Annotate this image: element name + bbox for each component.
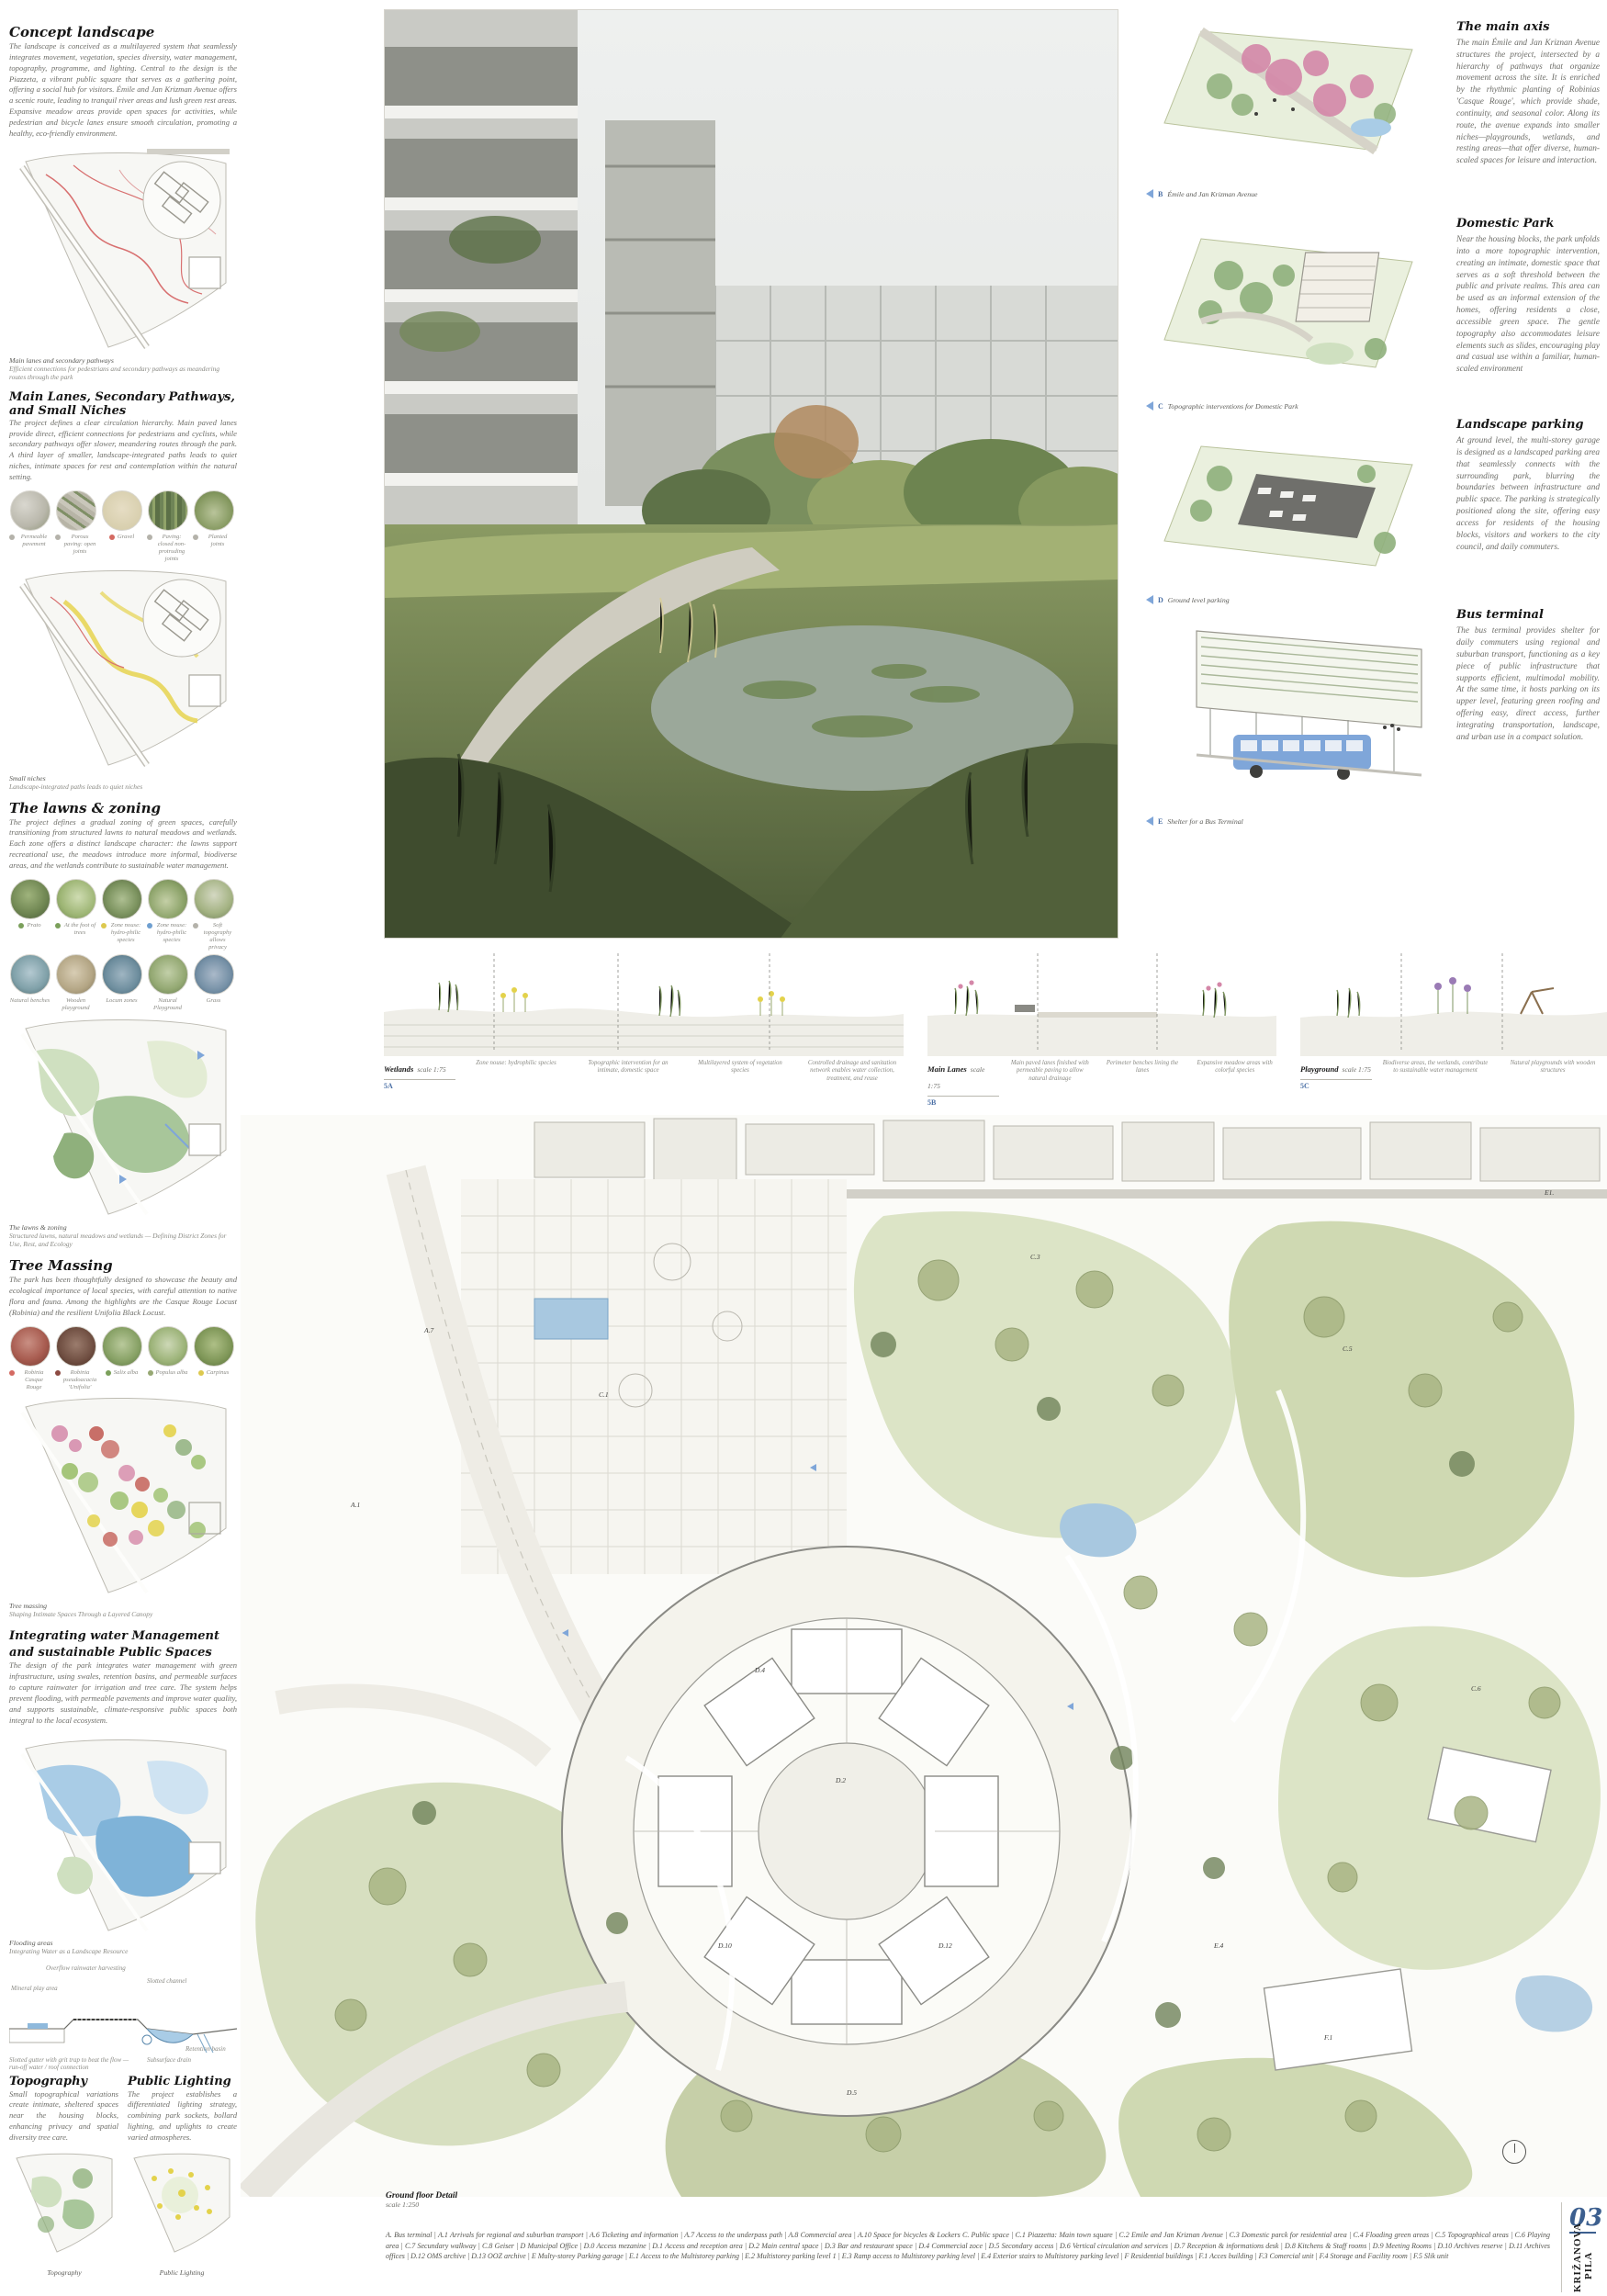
figure-caption: Flooding areas Integrating Water as a La… — [9, 1939, 237, 1955]
material-photo — [102, 490, 142, 531]
section-scale: scale 1:75 — [1343, 1065, 1371, 1074]
caption-title: Flooding areas — [9, 1939, 237, 1947]
water-section-sketch: Overflow rainwater harvesting Mineral pl… — [9, 1964, 237, 2073]
zone-swatch: Grass — [193, 954, 234, 1012]
zone-swatch: Zone nouse: hydro-philic species — [147, 879, 188, 951]
mini-plan-caption: Public Lighting — [127, 2268, 237, 2277]
plan-label: C.3 — [1030, 1253, 1040, 1261]
zone-label: Zone nouse: hydro-philic species — [155, 922, 188, 944]
axon-main-axis-drawing — [1146, 13, 1438, 187]
axon-landscape-parking-drawing — [1146, 423, 1438, 593]
text-block-main-axis: The main axis The main Émile and Jan Kri… — [1456, 20, 1600, 167]
axon-caption-text: Shelter for a Bus Terminal — [1167, 817, 1242, 826]
axon-caption: B Émile and Jan Krizman Avenue — [1146, 189, 1438, 198]
zone-label: Natural Playground — [147, 997, 188, 1012]
block-title: Domestic Park — [1456, 217, 1600, 231]
material-label: Planted joints — [201, 534, 234, 548]
section-main-lanes: Main Lanes scale 1:75 5B Main paved lane… — [927, 948, 1276, 1111]
plan-caption-scale: scale 1:250 — [386, 2200, 457, 2209]
zone-label: Soft topography allows privacy — [201, 922, 234, 951]
tree-species-swatches: Robinia Casque Rouge Robinia pseudoacaci… — [9, 1326, 237, 1391]
legend-dot — [193, 923, 198, 929]
tree-swatch: Robinia pseudoacacia 'Unifolia' — [55, 1326, 96, 1391]
plan-legend: A. Bus terminal | A.1 Arrivals for regio… — [386, 2230, 1550, 2262]
sections-band: Wetlands scale 1:75 5A Zone nouse: hydro… — [384, 948, 1607, 1111]
axon-landscape-parking: D Ground level parking — [1146, 423, 1438, 604]
axon-caption: E Shelter for a Bus Terminal — [1146, 816, 1438, 826]
zone-swatch: Wooden playground — [55, 954, 96, 1012]
section-caption-labels: Zone nouse: hydrophilic species Topograp… — [465, 1060, 904, 1090]
material-swatch: Paving: closed non-protruding joints — [147, 490, 188, 563]
section-body: The project defines a clear circulation … — [9, 418, 237, 483]
section-water: Integrating water Management and sustain… — [9, 1627, 237, 1726]
block-title: Landscape parking — [1456, 418, 1600, 432]
section-caption-labels: Biodiverse areas, the wetlands, contribu… — [1381, 1060, 1607, 1090]
plan-label: E1. — [1545, 1188, 1554, 1197]
diagram-tree-massing — [9, 1392, 237, 1599]
section-tree-massing: Tree Massing The park has been thoughtfu… — [9, 1257, 237, 1318]
section-label: Zone nouse: hydrophilic species — [465, 1060, 568, 1090]
section-lawns: The lawns & zoning The project defines a… — [9, 800, 237, 872]
legend-dot — [147, 535, 152, 540]
block-title: The main axis — [1456, 20, 1600, 34]
zone-swatch: Zone nouse: hydro-philic species — [101, 879, 142, 951]
section-body: Small topographical variations create in… — [9, 2089, 118, 2144]
section-body: The project establishes a differentiated… — [128, 2089, 237, 2144]
mini-plans: Topography Public Lighting — [9, 2151, 237, 2277]
section-label: Expansive meadow areas with colorful spe… — [1193, 1060, 1276, 1107]
section-label: Biodiverse areas, the wetlands, contribu… — [1381, 1060, 1489, 1090]
diagram-main-lanes — [9, 147, 237, 354]
plan-label: D.4 — [755, 1666, 765, 1674]
caption-sub: Structured lawns, natural meadows and we… — [9, 1232, 237, 1248]
mini-plan-lighting-drawing — [127, 2151, 235, 2268]
legend-dot — [106, 1370, 111, 1376]
zone-photo — [102, 879, 142, 919]
section-wetlands: Wetlands scale 1:75 5A Zone nouse: hydro… — [384, 948, 904, 1111]
sketch-label: Slotted channel — [147, 1977, 186, 1985]
section-caption-head: Main Lanes scale 1:75 5B — [927, 1060, 999, 1107]
axon-caption: D Ground level parking — [1146, 595, 1438, 604]
section-wetlands-drawing — [384, 948, 904, 1056]
plan-view-marker-icon — [1067, 1703, 1073, 1710]
zone-photo — [148, 954, 188, 995]
diagram-lawns-zoning — [9, 1014, 237, 1221]
caption-sub: Landscape-integrated paths leads to quie… — [9, 782, 237, 791]
text-block-domestic-park: Domestic Park Near the housing blocks, t… — [1456, 217, 1600, 376]
zone-swatch: Prato — [9, 879, 51, 951]
project-name: KRIŽANOVA PILA — [1572, 2239, 1594, 2292]
zone-photo — [194, 954, 234, 995]
plan-label: A.1 — [351, 1501, 360, 1509]
plan-label: A.7 — [424, 1326, 433, 1334]
section-title: Topography — [9, 2075, 87, 2088]
section-title: Tree Massing — [9, 1257, 113, 1274]
material-swatch: Porous paving: open joints — [55, 490, 96, 563]
legend-dot — [55, 535, 61, 540]
diagram-flooding-areas — [9, 1734, 237, 1936]
right-text-column: The main axis The main Émile and Jan Kri… — [1456, 20, 1600, 771]
zone-swatch: Natural Playground — [147, 954, 188, 1012]
material-photo — [10, 490, 51, 531]
zone-photo — [148, 879, 188, 919]
plan-label: C.1 — [599, 1390, 609, 1399]
ground-floor-plan-drawing — [241, 1115, 1607, 2197]
zone-photo — [10, 954, 51, 995]
tree-photo — [148, 1326, 188, 1367]
section-caption: Playground scale 1:75 5C Biodiverse area… — [1300, 1060, 1607, 1090]
zone-label: At the foot of trees — [63, 922, 96, 937]
plan-caption: Ground floor Detail scale 1:250 — [386, 2191, 457, 2209]
tree-label: Carpinus — [207, 1369, 230, 1377]
axon-bus-terminal: E Shelter for a Bus Terminal — [1146, 617, 1438, 826]
figure-caption: Main lanes and secondary pathways Effici… — [9, 356, 237, 381]
mini-plan-topography-drawing — [9, 2151, 118, 2268]
section-label: Natural playgrounds with wooden structur… — [1499, 1060, 1607, 1090]
caption-title: Small niches — [9, 774, 237, 782]
plan-label: E.4 — [1214, 1941, 1223, 1950]
tree-swatch: Carpinus — [193, 1326, 234, 1391]
legend-dot — [193, 535, 198, 540]
plan-label: D.2 — [836, 1776, 846, 1784]
zone-photo — [56, 879, 96, 919]
section-main-lanes-drawing — [927, 948, 1276, 1056]
legend-dot — [55, 923, 61, 929]
tree-photo — [194, 1326, 234, 1367]
section-body: The park has been thoughtfully designed … — [9, 1275, 237, 1318]
park-render-drawing — [385, 10, 1118, 939]
zone-photo — [10, 879, 51, 919]
view-marker-letter: E — [1158, 817, 1163, 826]
caption-sub: Integrating Water as a Landscape Resourc… — [9, 1947, 237, 1955]
zone-swatches-row2: Natural benches Wooden playground Locum … — [9, 954, 237, 1012]
section-ref: 5B — [927, 1096, 999, 1107]
section-scale: scale 1:75 — [417, 1065, 445, 1074]
section-title: Integrating water Management and sustain… — [9, 1629, 219, 1660]
section-title: Concept landscape — [9, 24, 154, 40]
plan-label: C.5 — [1343, 1345, 1353, 1353]
axon-domestic-park: C Topographic interventions for Domestic… — [1146, 211, 1438, 411]
section-body: The project defines a gradual zoning of … — [9, 817, 237, 872]
board-footer: 03 KRIŽANOVA PILA — [1561, 2202, 1603, 2292]
section-caption-labels: Main paved lanes finished with permeable… — [1008, 1060, 1276, 1107]
view-marker-letter: C — [1158, 402, 1163, 411]
left-column: Concept landscape The landscape is conce… — [9, 24, 237, 2277]
mini-plan-topography: Topography — [9, 2151, 119, 2277]
topo-lighting-row: Topography Small topographical variation… — [9, 2073, 237, 2144]
section-body: The landscape is conceived as a multilay… — [9, 41, 237, 140]
caption-sub: Efficient connections for pedestrians an… — [9, 365, 237, 381]
section-playground: Playground scale 1:75 5C Biodiverse area… — [1300, 948, 1607, 1111]
axon-caption-text: Émile and Jan Krizman Avenue — [1167, 190, 1257, 198]
tree-label: Salix alba — [114, 1369, 139, 1377]
view-marker-icon — [1146, 816, 1153, 826]
axon-domestic-park-drawing — [1146, 211, 1438, 400]
plan-label: F.1 — [1324, 2033, 1332, 2042]
material-swatch: Gravel — [101, 490, 142, 563]
plan-label: D.10 — [718, 1941, 732, 1950]
zone-swatch: Soft topography allows privacy — [193, 879, 234, 951]
section-playground-drawing — [1300, 948, 1607, 1056]
material-label: Porous paving: open joints — [63, 534, 96, 556]
section-name: Playground — [1300, 1064, 1339, 1074]
zone-swatches-row1: Prato At the foot of trees Zone nouse: h… — [9, 879, 237, 951]
zone-swatch: Natural benches — [9, 954, 51, 1012]
ground-floor-plan: A.7 A.1 C.1 C.3 C.5 C.6 D.2 D.4 D.10 D.1… — [241, 1115, 1607, 2197]
material-label: Paving: closed non-protruding joints — [155, 534, 188, 563]
legend-dot — [147, 923, 152, 929]
view-marker-letter: B — [1158, 190, 1163, 198]
section-body: The design of the park integrates water … — [9, 1660, 237, 1726]
axon-column: B Émile and Jan Krizman Avenue — [1146, 13, 1438, 838]
legend-dot — [18, 923, 24, 929]
caption-sub: Shaping Intimate Spaces Through a Layere… — [9, 1610, 237, 1618]
legend-dot — [198, 1370, 204, 1376]
section-name: Wetlands — [384, 1064, 413, 1074]
legend-dot — [109, 535, 115, 540]
section-ref: 5C — [1300, 1079, 1372, 1090]
section-concept: Concept landscape The landscape is conce… — [9, 24, 237, 140]
axon-caption: C Topographic interventions for Domestic… — [1146, 401, 1438, 411]
section-caption: Main Lanes scale 1:75 5B Main paved lane… — [927, 1060, 1276, 1107]
material-photo — [148, 490, 188, 531]
axon-caption-text: Topographic interventions for Domestic P… — [1168, 402, 1298, 411]
legend-dot — [101, 923, 107, 929]
section-label: Main paved lanes finished with permeable… — [1008, 1060, 1092, 1107]
sketch-label: Subsurface drain — [147, 2056, 191, 2064]
tree-label: Populus alba — [156, 1369, 188, 1377]
text-block-bus-terminal: Bus terminal The bus terminal provides s… — [1456, 608, 1600, 743]
plan-caption-title: Ground floor Detail — [386, 2191, 457, 2200]
block-body: Near the housing blocks, the park unfold… — [1456, 234, 1600, 376]
material-swatch: Planted joints — [193, 490, 234, 563]
tree-label: Robinia Casque Rouge — [17, 1369, 51, 1391]
section-label: Topographic intervention for an intimate… — [577, 1060, 680, 1090]
water-section-drawing — [9, 1992, 237, 2056]
park-render-photo — [384, 9, 1118, 939]
presentation-board: Concept landscape The landscape is conce… — [0, 0, 1607, 2296]
mini-plan-caption: Topography — [9, 2268, 119, 2277]
tree-photo — [10, 1326, 51, 1367]
axon-caption-text: Ground level parking — [1168, 596, 1230, 604]
zone-photo — [194, 879, 234, 919]
section-label: Perimeter benches lining the lanes — [1101, 1060, 1185, 1107]
zone-label: Natural benches — [10, 997, 50, 1005]
material-swatch: Permeable pavement — [9, 490, 51, 563]
caption-title: Tree massing — [9, 1602, 237, 1610]
sketch-label: Overflow rainwater harvesting — [46, 1964, 126, 1972]
section-ref: 5A — [384, 1079, 455, 1090]
section-public-lighting: Public Lighting The project establishes … — [128, 2073, 237, 2144]
zone-photo — [56, 954, 96, 995]
plan-label: C.6 — [1471, 1684, 1481, 1693]
figure-caption: The lawns & zoning Structured lawns, nat… — [9, 1223, 237, 1248]
material-swatches: Permeable pavement Porous paving: open j… — [9, 490, 237, 563]
axon-main-axis: B Émile and Jan Krizman Avenue — [1146, 13, 1438, 198]
figure-caption: Small niches Landscape-integrated paths … — [9, 774, 237, 791]
section-caption-head: Playground scale 1:75 5C — [1300, 1060, 1372, 1090]
sketch-label: Mineral play area — [11, 1985, 58, 1992]
block-body: The main Émile and Jan Kriznan Avenue st… — [1456, 38, 1600, 167]
view-marker-letter: D — [1158, 596, 1163, 604]
block-body: The bus terminal provides shelter for da… — [1456, 625, 1600, 743]
block-body: At ground level, the multi-storey garage… — [1456, 435, 1600, 553]
section-caption: Wetlands scale 1:75 5A Zone nouse: hydro… — [384, 1060, 904, 1090]
view-marker-icon — [1146, 595, 1153, 604]
material-photo — [56, 490, 96, 531]
tree-swatch: Robinia Casque Rouge — [9, 1326, 51, 1391]
caption-title: The lawns & zoning — [9, 1223, 237, 1232]
axon-bus-terminal-drawing — [1146, 617, 1438, 815]
tree-label: Robinia pseudoacacia 'Unifolia' — [63, 1369, 96, 1391]
plan-view-marker-icon — [810, 1464, 816, 1471]
zone-swatch: At the foot of trees — [55, 879, 96, 951]
legend-dot — [9, 1370, 15, 1376]
zone-label: Locum zones — [106, 997, 137, 1005]
section-topography: Topography Small topographical variation… — [9, 2073, 118, 2144]
section-lanes: Main Lanes, Secondary Pathways, and Smal… — [9, 390, 237, 483]
view-marker-icon — [1146, 401, 1153, 411]
section-title: Public Lighting — [128, 2075, 231, 2088]
diagram-small-niches — [9, 565, 237, 771]
view-marker-icon — [1146, 189, 1153, 198]
section-title: Main Lanes, Secondary Pathways, and Smal… — [9, 390, 237, 418]
plan-label: D.12 — [938, 1941, 952, 1950]
north-compass-icon — [1502, 2140, 1526, 2164]
section-name: Main Lanes — [927, 1064, 967, 1074]
legend-dot — [9, 535, 15, 540]
zone-label: Zone nouse: hydro-philic species — [109, 922, 142, 944]
zone-label: Wooden playground — [55, 997, 96, 1012]
legend-dot — [148, 1370, 153, 1376]
material-photo — [194, 490, 234, 531]
tree-swatch: Populus alba — [147, 1326, 188, 1391]
zone-swatch: Locum zones — [101, 954, 142, 1012]
section-label: Multilayered system of vegetation specie… — [689, 1060, 792, 1090]
text-block-landscape-parking: Landscape parking At ground level, the m… — [1456, 418, 1600, 553]
section-title: The lawns & zoning — [9, 800, 161, 816]
section-caption-head: Wetlands scale 1:75 5A — [384, 1060, 455, 1090]
zone-label: Prato — [27, 922, 40, 929]
tree-photo — [102, 1326, 142, 1367]
zone-photo — [102, 954, 142, 995]
material-label: Gravel — [118, 534, 134, 541]
figure-caption: Tree massing Shaping Intimate Spaces Thr… — [9, 1602, 237, 1618]
plan-label: D.5 — [847, 2088, 857, 2097]
zone-label: Grass — [207, 997, 221, 1005]
tree-swatch: Salix alba — [101, 1326, 142, 1391]
block-title: Bus terminal — [1456, 608, 1600, 622]
tree-photo — [56, 1326, 96, 1367]
section-label: Controlled drainage and sanitation netwo… — [801, 1060, 904, 1090]
caption-title: Main lanes and secondary pathways — [9, 356, 237, 365]
material-label: Permeable pavement — [17, 534, 51, 548]
legend-dot — [55, 1370, 61, 1376]
plan-view-marker-icon — [562, 1629, 568, 1637]
mini-plan-lighting: Public Lighting — [127, 2151, 237, 2277]
sketch-label: Slotted gutter with grit trap to beat th… — [9, 2056, 138, 2071]
